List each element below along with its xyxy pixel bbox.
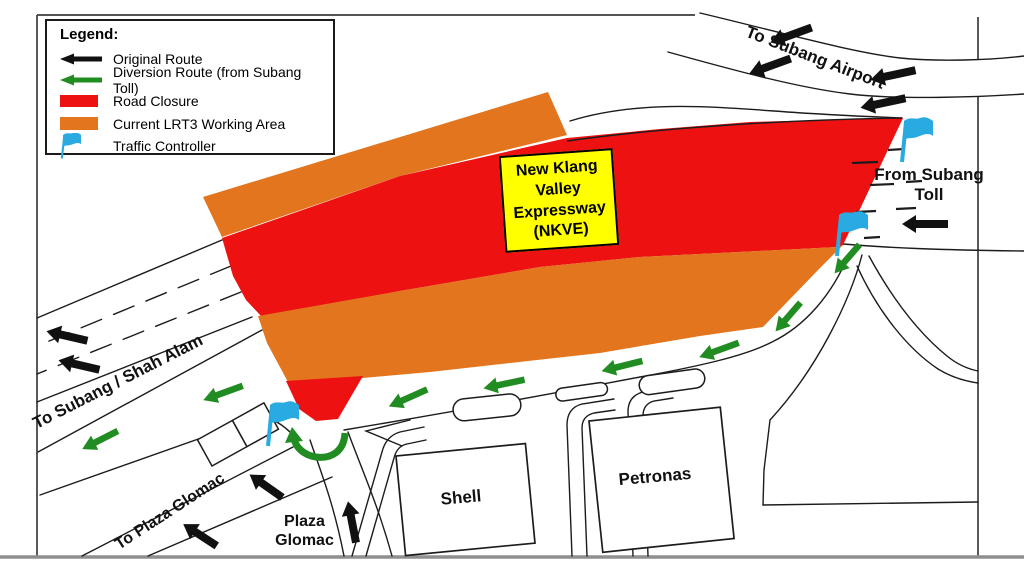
working-area-swatch bbox=[60, 117, 98, 130]
traffic-controller-flag-icon bbox=[60, 133, 86, 159]
road-closure-swatch bbox=[60, 95, 98, 107]
traffic-controller-flag bbox=[902, 117, 933, 162]
legend: Legend: Original Route Diversion Route (… bbox=[45, 19, 335, 155]
diversion-route-arrow bbox=[482, 372, 526, 396]
road-edge bbox=[869, 256, 978, 371]
lane-dash bbox=[864, 237, 880, 238]
lane-dash bbox=[896, 208, 916, 209]
traffic-island bbox=[555, 382, 608, 402]
traffic-island bbox=[638, 368, 706, 396]
legend-title: Legend: bbox=[60, 26, 327, 43]
diversion-route-arrow bbox=[600, 353, 645, 379]
original-route-arrow-icon bbox=[60, 53, 104, 65]
label-from-subang-toll: From Subang Toll bbox=[872, 165, 986, 206]
diversion-route-arrow bbox=[201, 378, 246, 407]
original-route-arrow bbox=[57, 352, 102, 379]
legend-item-label: Traffic Controller bbox=[113, 138, 216, 154]
nkve-sign: New Klang Valley Expressway (NKVE) bbox=[499, 148, 620, 253]
lane-dash bbox=[852, 162, 878, 163]
traffic-diversion-map: To Subang Airport From Subang Toll To Su… bbox=[0, 0, 1024, 576]
original-route-arrow bbox=[178, 517, 221, 554]
legend-item-working-area: Current LRT3 Working Area bbox=[60, 113, 327, 134]
original-route-arrow bbox=[244, 467, 287, 505]
toll-booths bbox=[197, 403, 278, 466]
diversion-route-arrow bbox=[386, 382, 431, 414]
label-plaza-glomac: Plaza Glomac bbox=[267, 512, 342, 550]
legend-item-diversion-route: Diversion Route (from Subang Toll) bbox=[60, 69, 327, 90]
traffic-island bbox=[452, 393, 522, 422]
original-route-arrow bbox=[339, 500, 365, 545]
airport-road-fill bbox=[668, 13, 1024, 97]
legend-item-label: Diversion Route (from Subang Toll) bbox=[113, 64, 327, 96]
original-route-arrow bbox=[902, 215, 948, 233]
road-median bbox=[366, 420, 410, 446]
road-edge bbox=[37, 240, 222, 318]
diversion-route-arrow-icon bbox=[60, 74, 104, 86]
road-edge bbox=[857, 266, 978, 383]
legend-item-traffic-controller: Traffic Controller bbox=[60, 134, 327, 158]
diversion-route-arrow bbox=[79, 424, 122, 456]
road-edge bbox=[763, 502, 978, 505]
road-edge bbox=[843, 244, 1024, 251]
legend-item-label: Current LRT3 Working Area bbox=[113, 116, 285, 132]
legend-item-label: Road Closure bbox=[113, 93, 199, 109]
